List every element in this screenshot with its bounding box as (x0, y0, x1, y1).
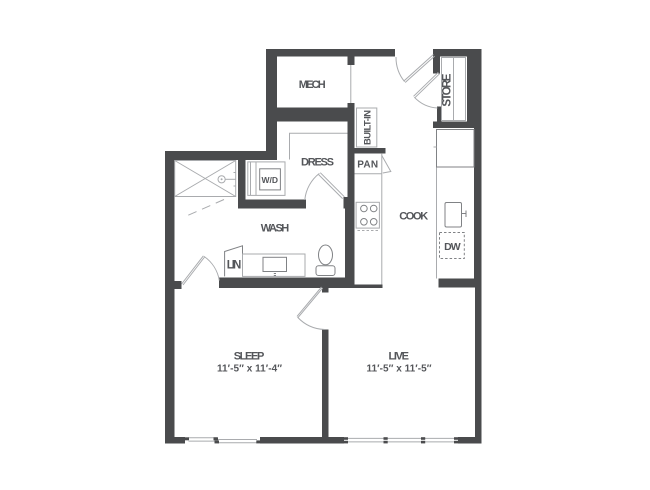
svg-text:PAN: PAN (357, 160, 378, 171)
svg-text:DW: DW (444, 241, 461, 253)
svg-text:LIVE: LIVE (388, 351, 409, 363)
svg-text:SLEEP: SLEEP (234, 351, 265, 363)
svg-text:11′-5″ x 11′-4″: 11′-5″ x 11′-4″ (217, 363, 282, 374)
svg-text:DRESS: DRESS (301, 156, 334, 168)
svg-text:LIN: LIN (227, 259, 242, 271)
svg-text:WASH: WASH (261, 222, 289, 234)
svg-text:11′-5″ x 11′-5″: 11′-5″ x 11′-5″ (367, 363, 432, 374)
svg-text:MECH: MECH (299, 79, 326, 91)
svg-text:W/D: W/D (262, 175, 279, 185)
svg-text:BUILT-IN: BUILT-IN (363, 110, 374, 145)
svg-text:COOK: COOK (399, 210, 428, 222)
svg-text:STORE: STORE (442, 73, 454, 106)
